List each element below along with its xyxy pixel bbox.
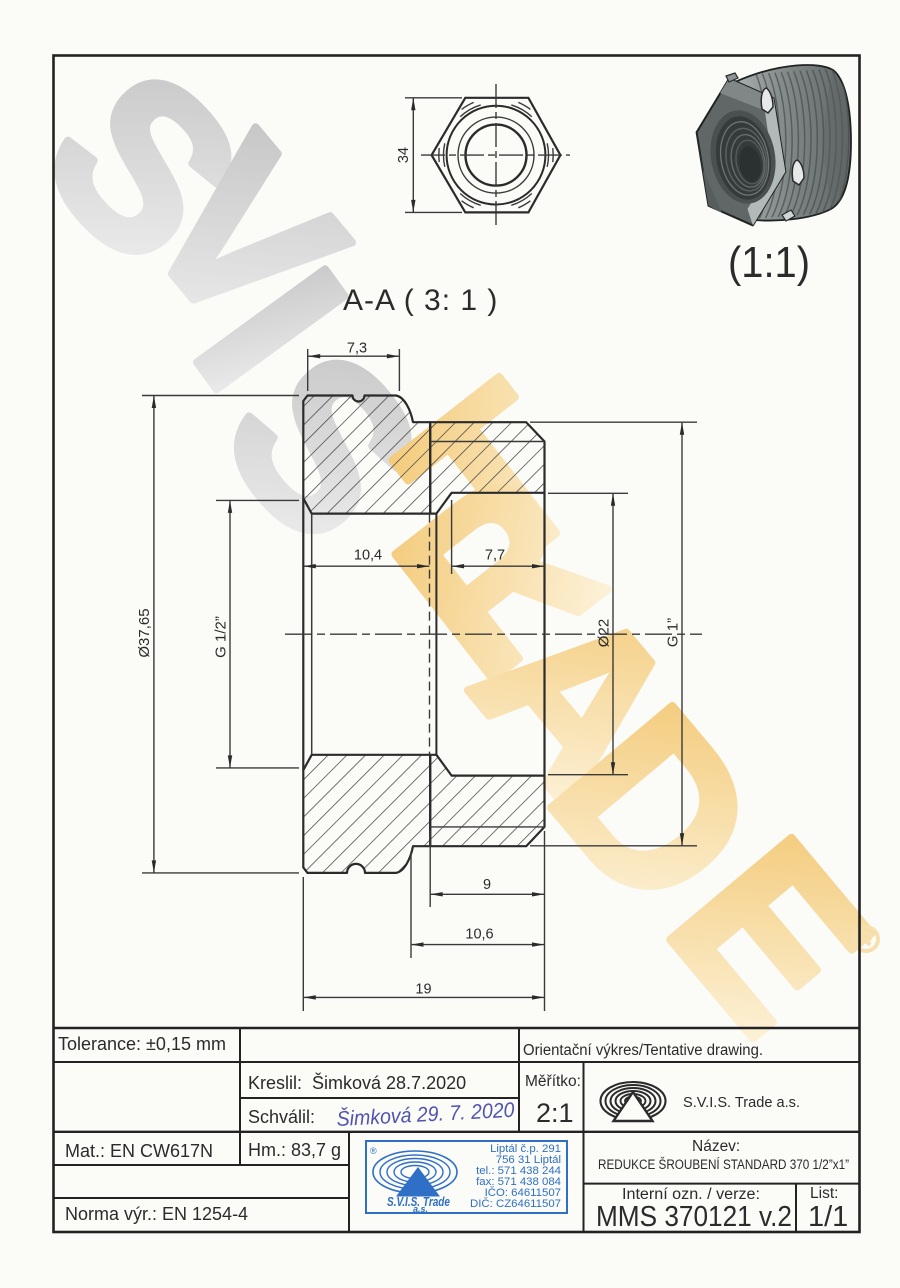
svg-text:7,7: 7,7 xyxy=(485,548,505,564)
svg-text:Ø22: Ø22 xyxy=(596,619,613,647)
svg-text:9: 9 xyxy=(483,877,491,893)
svg-text:1/1: 1/1 xyxy=(808,1201,848,1233)
svg-text:Měřítko:: Měřítko: xyxy=(525,1073,581,1090)
svg-text:Hm.: 83,7 g: Hm.: 83,7 g xyxy=(248,1140,341,1160)
svg-text:G 1”: G 1” xyxy=(665,618,682,647)
svg-text:2:1: 2:1 xyxy=(536,1098,574,1128)
svg-text:Tolerance: ±0,15 mm: Tolerance: ±0,15 mm xyxy=(58,1034,226,1054)
svg-text:Orientační výkres/Tentative dr: Orientační výkres/Tentative drawing. xyxy=(523,1042,763,1059)
svg-text:Název:: Název: xyxy=(692,1138,740,1155)
svg-text:Ø37,65: Ø37,65 xyxy=(136,608,153,657)
svg-text:Mat.: EN CW617N: Mat.: EN CW617N xyxy=(65,1141,213,1161)
svg-text:S.V.I.S. Trade a.s.: S.V.I.S. Trade a.s. xyxy=(683,1095,800,1111)
svg-text:DIČ: CZ64611507: DIČ: CZ64611507 xyxy=(470,1197,561,1210)
svg-text:10,6: 10,6 xyxy=(465,927,493,943)
svg-text:10,4: 10,4 xyxy=(354,548,382,564)
svg-text:34: 34 xyxy=(396,147,412,163)
svg-text:Norma výr.: EN 1254-4: Norma výr.: EN 1254-4 xyxy=(65,1204,248,1224)
svg-text:7,3: 7,3 xyxy=(347,341,367,357)
svg-text:Schválil:: Schválil: xyxy=(248,1107,315,1127)
svg-text:REDUKCE ŠROUBENÍ STANDARD 370: REDUKCE ŠROUBENÍ STANDARD 370 1/2”x1” xyxy=(598,1156,849,1173)
svg-text:®: ® xyxy=(370,1146,377,1156)
svg-text:(1:1): (1:1) xyxy=(728,238,810,287)
svg-text:MMS 370121 v.2: MMS 370121 v.2 xyxy=(596,1201,792,1233)
svg-text:G 1/2”: G 1/2” xyxy=(213,616,230,658)
svg-text:Kreslil: Šimková 28.7.2020: Kreslil: Šimková 28.7.2020 xyxy=(248,1072,466,1093)
svg-text:A-A ( 3: 1 ): A-A ( 3: 1 ) xyxy=(343,284,498,317)
svg-text:a.s.: a.s. xyxy=(413,1204,428,1214)
svg-text:19: 19 xyxy=(415,982,431,998)
svg-text:List:: List: xyxy=(810,1185,838,1202)
